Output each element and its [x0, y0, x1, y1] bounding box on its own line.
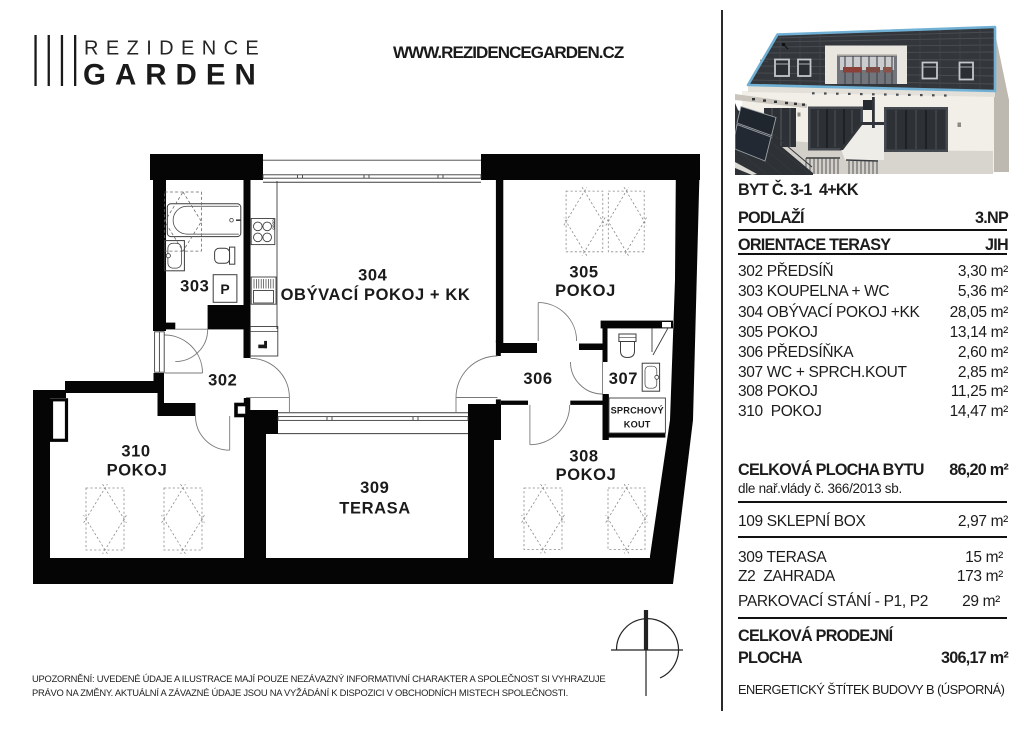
svg-text:303: 303	[180, 278, 209, 296]
svg-text:305: 305	[569, 264, 598, 282]
svg-text:307: 307	[609, 370, 638, 388]
svg-text:POKOJ: POKOJ	[556, 466, 617, 484]
svg-text:310: 310	[121, 443, 150, 461]
svg-text:P: P	[220, 281, 229, 297]
svg-text:302: 302	[208, 372, 237, 390]
svg-text:OBÝVACÍ POKOJ + KK: OBÝVACÍ POKOJ + KK	[281, 285, 471, 304]
svg-text:TERASA: TERASA	[339, 500, 410, 518]
svg-text:309: 309	[360, 479, 389, 497]
svg-text:SPRCHOVÝ: SPRCHOVÝ	[611, 405, 664, 416]
svg-text:308: 308	[569, 448, 598, 466]
svg-text:304: 304	[358, 267, 388, 285]
svg-text:POKOJ: POKOJ	[555, 282, 616, 300]
svg-text:POKOJ: POKOJ	[107, 462, 168, 480]
svg-text:306: 306	[523, 370, 552, 388]
svg-text:KOUT: KOUT	[624, 420, 651, 430]
